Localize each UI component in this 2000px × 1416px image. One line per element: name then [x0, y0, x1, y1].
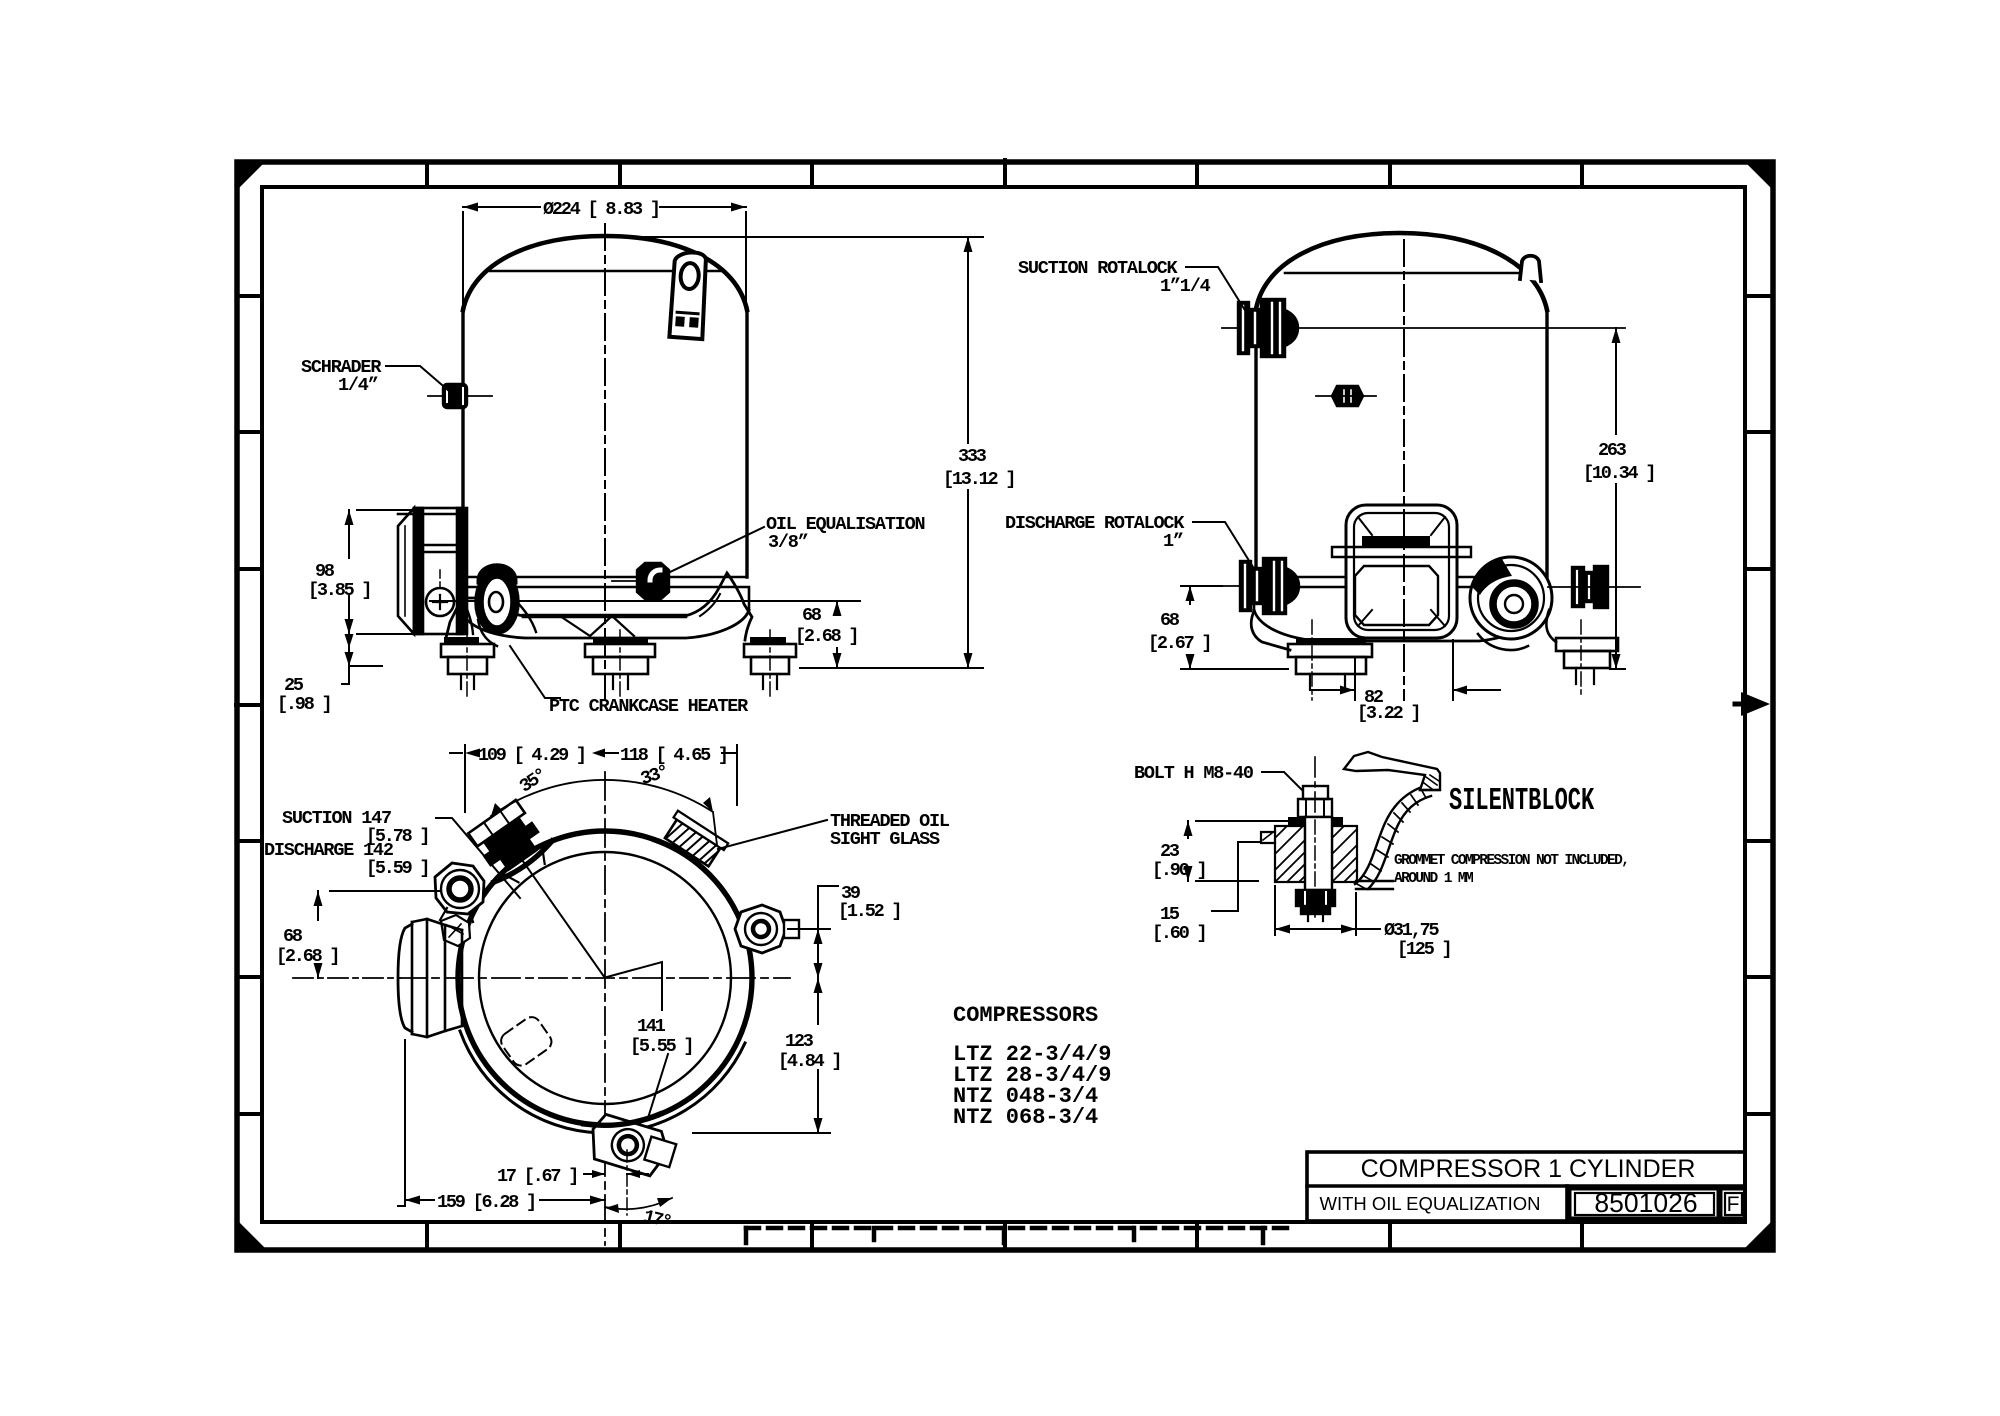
svg-text:GROMMET COMPRESSION NOT INCLUD: GROMMET COMPRESSION NOT INCLUDED,	[1394, 853, 1628, 869]
svg-text:[1.52 ]: [1.52 ]	[838, 901, 900, 922]
svg-text:[5.59 ]: [5.59 ]	[366, 858, 428, 879]
svg-text:3/8”: 3/8”	[768, 532, 808, 553]
svg-text:159 [6.28 ]: 159 [6.28 ]	[437, 1192, 535, 1213]
svg-text:68: 68	[283, 926, 303, 947]
svg-text:15: 15	[1160, 904, 1180, 925]
svg-text:[125 ]: [125 ]	[1397, 939, 1450, 960]
svg-text:68: 68	[802, 605, 822, 626]
svg-text:BOLT H M8-40: BOLT H M8-40	[1134, 763, 1254, 784]
svg-text:1/4”: 1/4”	[338, 375, 378, 396]
svg-text:[2.68 ]: [2.68 ]	[276, 946, 338, 967]
svg-text:8501026: 8501026	[1594, 1188, 1697, 1218]
svg-text:DISCHARGE ROTALOCK: DISCHARGE ROTALOCK	[1005, 513, 1185, 534]
svg-text:17 [.67 ]: 17 [.67 ]	[497, 1166, 577, 1187]
svg-text:AROUND 1 MM: AROUND 1 MM	[1394, 871, 1473, 887]
svg-text:1”: 1”	[1163, 531, 1183, 552]
svg-text:Ø31,75: Ø31,75	[1384, 920, 1440, 941]
svg-text:Ø224 [ 8.83 ]: Ø224 [ 8.83 ]	[543, 199, 659, 220]
svg-text:WITH OIL EQUALIZATION: WITH OIL EQUALIZATION	[1320, 1193, 1541, 1214]
svg-text:[.90 ]: [.90 ]	[1152, 860, 1205, 881]
svg-text:COMPRESSOR 1 CYLINDER: COMPRESSOR 1 CYLINDER	[1361, 1155, 1696, 1183]
svg-text:COMPRESSORS: COMPRESSORS	[953, 1003, 1098, 1028]
svg-text:23: 23	[1160, 841, 1180, 862]
svg-text:SILENTBLOCK: SILENTBLOCK	[1449, 783, 1595, 819]
svg-text:NTZ 068-3/4: NTZ 068-3/4	[953, 1105, 1098, 1130]
svg-text:[4.84 ]: [4.84 ]	[778, 1051, 840, 1072]
svg-text:25: 25	[284, 675, 304, 696]
svg-text:141: 141	[637, 1016, 666, 1037]
svg-text:[3.22 ]: [3.22 ]	[1357, 703, 1419, 724]
svg-text:[5.55 ]: [5.55 ]	[630, 1036, 692, 1057]
svg-text:333: 333	[958, 446, 987, 467]
svg-text:118 [ 4.65 ]: 118 [ 4.65 ]	[620, 745, 727, 766]
svg-text:[10.34 ]: [10.34 ]	[1583, 463, 1654, 484]
svg-text:PTC CRANKCASE HEATER: PTC CRANKCASE HEATER	[549, 696, 749, 717]
svg-text:98: 98	[315, 561, 335, 582]
svg-text:[2.67 ]: [2.67 ]	[1148, 633, 1210, 654]
svg-text:[3.85 ]: [3.85 ]	[308, 580, 370, 601]
svg-text:[13.12 ]: [13.12 ]	[943, 469, 1014, 490]
svg-text:263: 263	[1598, 440, 1627, 461]
svg-text:109 [ 4.29 ]: 109 [ 4.29 ]	[478, 745, 585, 766]
svg-text:[2.68 ]: [2.68 ]	[795, 626, 857, 647]
svg-text:[.98 ]: [.98 ]	[277, 694, 330, 715]
svg-text:1”1/4: 1”1/4	[1160, 276, 1211, 297]
svg-text:[.60 ]: [.60 ]	[1152, 923, 1205, 944]
svg-text:123: 123	[785, 1031, 814, 1052]
svg-text:SIGHT GLASS: SIGHT GLASS	[830, 829, 940, 850]
svg-text:68: 68	[1160, 610, 1180, 631]
svg-text:F: F	[1727, 1193, 1740, 1216]
svg-text:SUCTION ROTALOCK: SUCTION ROTALOCK	[1018, 258, 1179, 279]
